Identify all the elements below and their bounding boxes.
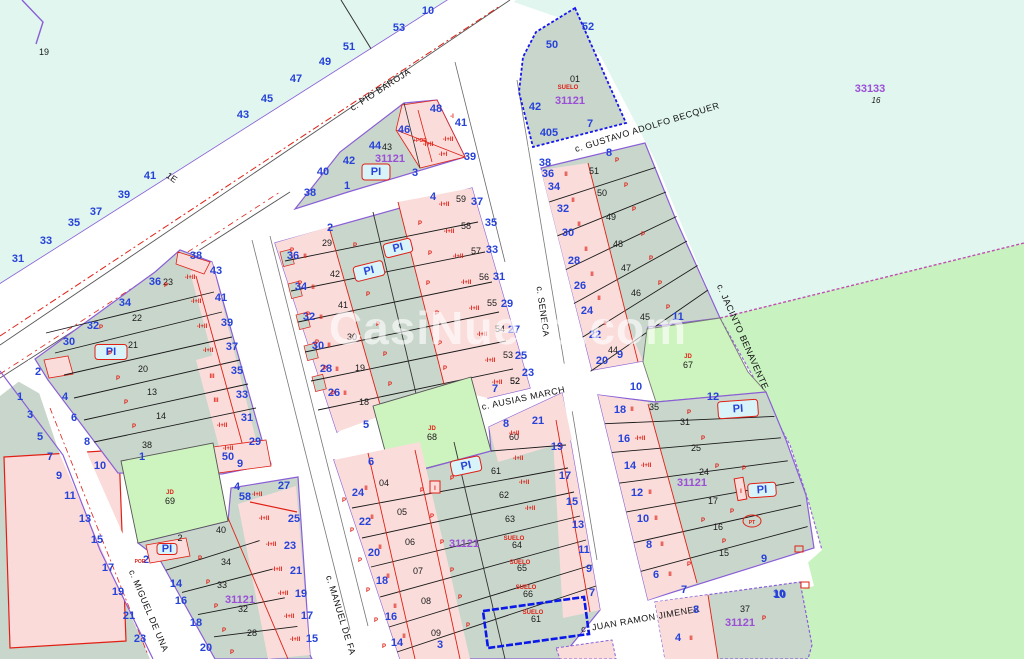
- svg-text:-I+II: -I+II: [461, 280, 472, 286]
- svg-text:16: 16: [175, 595, 187, 607]
- svg-text:-I+II: -I+II: [191, 299, 202, 305]
- svg-text:18: 18: [190, 617, 202, 629]
- svg-text:P: P: [701, 518, 705, 524]
- svg-text:P: P: [428, 251, 432, 257]
- svg-text:SUELO: SUELO: [523, 610, 544, 616]
- svg-text:7: 7: [589, 587, 595, 599]
- svg-text:53: 53: [393, 22, 405, 34]
- svg-text:-I+II: -I+II: [266, 542, 277, 548]
- svg-text:49: 49: [319, 56, 331, 68]
- svg-text:21: 21: [532, 415, 544, 427]
- svg-text:P: P: [198, 556, 202, 562]
- svg-text:23: 23: [134, 633, 146, 645]
- svg-text:40: 40: [216, 525, 226, 535]
- svg-text:19: 19: [551, 441, 563, 453]
- svg-text:P: P: [658, 281, 662, 287]
- svg-text:39: 39: [464, 151, 476, 163]
- svg-text:17: 17: [102, 562, 114, 574]
- svg-text:III: III: [209, 374, 214, 380]
- svg-text:07: 07: [413, 566, 423, 576]
- svg-text:17: 17: [708, 496, 718, 506]
- svg-text:14: 14: [624, 460, 637, 472]
- svg-text:P: P: [430, 514, 434, 520]
- svg-text:18: 18: [359, 397, 369, 407]
- svg-text:-I+II: -I+II: [272, 567, 283, 573]
- svg-text:50: 50: [546, 39, 558, 51]
- svg-text:68: 68: [427, 432, 437, 442]
- svg-text:P: P: [624, 183, 628, 189]
- svg-text:31: 31: [680, 417, 690, 427]
- svg-text:31121: 31121: [725, 617, 755, 629]
- svg-text:P: P: [382, 644, 386, 650]
- svg-text:PI: PI: [371, 166, 381, 178]
- svg-text:24: 24: [699, 467, 709, 477]
- svg-text:P: P: [323, 366, 327, 372]
- svg-text:21: 21: [128, 340, 138, 350]
- svg-text:2: 2: [35, 366, 41, 378]
- svg-text:P: P: [420, 488, 424, 494]
- svg-text:34: 34: [119, 297, 132, 309]
- svg-text:P: P: [214, 604, 218, 610]
- svg-text:4: 4: [675, 632, 682, 644]
- svg-text:3: 3: [437, 639, 443, 651]
- svg-text:11: 11: [578, 544, 590, 556]
- svg-text:43: 43: [237, 109, 249, 121]
- svg-text:-I+II: -I+II: [444, 229, 455, 235]
- svg-text:II: II: [343, 391, 347, 397]
- svg-text:39: 39: [118, 189, 130, 201]
- svg-text:P: P: [615, 158, 619, 164]
- svg-text:16: 16: [713, 522, 723, 532]
- svg-text:II: II: [364, 486, 368, 492]
- svg-text:48: 48: [613, 239, 623, 249]
- svg-text:II: II: [689, 636, 693, 642]
- svg-text:5: 5: [37, 431, 43, 443]
- svg-text:30: 30: [562, 227, 574, 239]
- svg-text:9: 9: [56, 470, 62, 482]
- svg-text:4: 4: [62, 391, 69, 403]
- svg-text:17: 17: [559, 470, 571, 482]
- svg-text:-I+II: -I+II: [509, 431, 520, 437]
- svg-text:31121: 31121: [225, 594, 255, 606]
- svg-text:15: 15: [566, 496, 578, 508]
- svg-text:52: 52: [510, 376, 520, 386]
- svg-text:P: P: [350, 528, 354, 534]
- svg-text:P: P: [99, 325, 103, 331]
- svg-text:II: II: [630, 407, 634, 413]
- svg-text:46: 46: [631, 288, 641, 298]
- svg-text:30: 30: [63, 336, 75, 348]
- svg-text:61: 61: [491, 466, 501, 476]
- svg-text:P: P: [342, 498, 346, 504]
- svg-text:II: II: [668, 572, 672, 578]
- svg-text:II: II: [571, 198, 575, 204]
- svg-text:37: 37: [226, 341, 238, 353]
- svg-text:8: 8: [84, 436, 90, 448]
- svg-text:26: 26: [574, 280, 586, 292]
- svg-text:35: 35: [231, 365, 243, 377]
- svg-text:40: 40: [317, 166, 329, 178]
- svg-text:P: P: [374, 618, 378, 624]
- svg-text:P: P: [458, 595, 462, 601]
- svg-text:II: II: [577, 222, 581, 228]
- svg-text:P: P: [418, 221, 422, 227]
- svg-text:16: 16: [872, 96, 881, 105]
- svg-text:P: P: [715, 464, 719, 470]
- svg-text:24: 24: [352, 487, 365, 499]
- svg-text:51: 51: [343, 41, 355, 53]
- svg-text:CasiNuevo.com: CasiNuevo.com: [329, 302, 687, 354]
- svg-text:-I+II: -I+II: [278, 591, 289, 597]
- svg-text:P: P: [306, 312, 310, 318]
- svg-text:05: 05: [397, 507, 407, 517]
- svg-text:34: 34: [221, 557, 231, 567]
- svg-text:50: 50: [222, 451, 234, 463]
- svg-text:III: III: [213, 398, 218, 404]
- svg-text:29: 29: [249, 436, 261, 448]
- svg-text:36: 36: [149, 276, 161, 288]
- svg-text:7: 7: [681, 584, 687, 596]
- svg-text:-I+II: -I+II: [290, 637, 301, 643]
- svg-text:34: 34: [548, 181, 561, 193]
- svg-text:41: 41: [215, 292, 227, 304]
- svg-text:37: 37: [740, 604, 750, 614]
- svg-text:35: 35: [68, 217, 80, 229]
- svg-text:1: 1: [17, 391, 23, 403]
- svg-text:33133: 33133: [855, 83, 886, 95]
- svg-text:23: 23: [284, 540, 296, 552]
- svg-text:P: P: [722, 539, 726, 545]
- svg-text:22: 22: [132, 313, 142, 323]
- svg-text:-I+II: -I+II: [259, 516, 270, 522]
- svg-text:09: 09: [431, 628, 441, 638]
- svg-text:P: P: [701, 436, 705, 442]
- svg-text:II: II: [654, 516, 658, 522]
- svg-text:46: 46: [398, 124, 410, 136]
- svg-text:42: 42: [343, 155, 355, 167]
- svg-text:8: 8: [503, 418, 509, 430]
- svg-text:12: 12: [631, 487, 643, 499]
- svg-text:16: 16: [618, 433, 630, 445]
- svg-text:7: 7: [47, 451, 53, 463]
- svg-text:6: 6: [653, 569, 659, 581]
- svg-text:01: 01: [570, 74, 580, 84]
- svg-text:P: P: [366, 588, 370, 594]
- svg-text:19: 19: [295, 588, 307, 600]
- svg-text:37: 37: [90, 206, 102, 218]
- svg-text:38: 38: [539, 157, 551, 169]
- svg-text:13: 13: [147, 387, 157, 397]
- svg-text:31121: 31121: [449, 538, 479, 550]
- svg-text:SUELO: SUELO: [504, 536, 525, 542]
- svg-text:10: 10: [637, 513, 649, 525]
- svg-text:P: P: [108, 351, 112, 357]
- svg-text:9: 9: [586, 563, 592, 575]
- svg-text:405: 405: [540, 127, 558, 139]
- svg-text:-I+II: -I+II: [485, 358, 496, 364]
- svg-text:67: 67: [683, 360, 693, 370]
- svg-text:2: 2: [327, 222, 333, 234]
- svg-text:50: 50: [597, 188, 607, 198]
- svg-text:P: P: [649, 256, 653, 262]
- svg-text:35: 35: [485, 217, 497, 229]
- svg-text:POR: POR: [135, 559, 146, 565]
- svg-text:-I+II: -I+II: [439, 202, 450, 208]
- svg-text:2: 2: [177, 533, 182, 543]
- svg-text:35: 35: [649, 402, 659, 412]
- svg-text:28: 28: [568, 255, 580, 267]
- svg-text:10: 10: [94, 460, 106, 472]
- svg-text:II: II: [584, 247, 588, 253]
- svg-text:47: 47: [290, 73, 302, 85]
- svg-text:08: 08: [421, 596, 431, 606]
- svg-text:16: 16: [385, 611, 397, 623]
- svg-text:43: 43: [382, 142, 392, 152]
- svg-text:P: P: [742, 466, 746, 472]
- svg-text:3: 3: [412, 167, 418, 179]
- svg-text:P: P: [358, 558, 362, 564]
- svg-text:II: II: [386, 574, 390, 580]
- svg-text:P: P: [290, 248, 294, 254]
- svg-text:II: II: [311, 285, 315, 291]
- svg-text:-I+I: -I+I: [439, 152, 448, 158]
- svg-text:-I+II: -I+II: [453, 254, 464, 260]
- svg-text:8: 8: [606, 147, 612, 159]
- svg-text:P: P: [450, 568, 454, 574]
- svg-text:28: 28: [247, 628, 257, 638]
- svg-text:63: 63: [505, 514, 515, 524]
- svg-text:P: P: [443, 366, 447, 372]
- svg-text:-I+II: -I+II: [284, 614, 295, 620]
- svg-text:P: P: [388, 382, 392, 388]
- svg-text:10: 10: [422, 5, 434, 17]
- svg-text:9: 9: [761, 553, 767, 565]
- svg-text:47: 47: [621, 263, 631, 273]
- svg-text:39: 39: [221, 317, 233, 329]
- svg-text:-I+II: -I+II: [519, 480, 530, 486]
- svg-text:II: II: [303, 254, 307, 260]
- svg-text:PT: PT: [749, 520, 755, 526]
- svg-text:+POR: +POR: [413, 138, 427, 144]
- svg-text:-I+II: -I+II: [197, 324, 208, 330]
- svg-text:-I+II: -I+II: [223, 446, 234, 452]
- svg-text:-I+II: -I+II: [513, 456, 524, 462]
- svg-text:06: 06: [405, 537, 415, 547]
- svg-text:P: P: [366, 292, 370, 298]
- svg-text:P: P: [132, 424, 136, 430]
- svg-text:7: 7: [492, 383, 498, 395]
- svg-text:P: P: [440, 540, 444, 546]
- svg-text:P: P: [687, 410, 691, 416]
- svg-text:15: 15: [719, 548, 729, 558]
- svg-text:7: 7: [587, 118, 593, 130]
- svg-text:21: 21: [290, 565, 302, 577]
- svg-text:II: II: [378, 545, 382, 551]
- svg-text:6: 6: [71, 412, 77, 424]
- svg-text:P: P: [206, 580, 210, 586]
- svg-text:31121: 31121: [555, 95, 585, 107]
- svg-text:17: 17: [301, 610, 313, 622]
- svg-text:58: 58: [461, 221, 471, 231]
- svg-text:31121: 31121: [375, 153, 405, 165]
- svg-text:48: 48: [430, 103, 442, 115]
- svg-text:51: 51: [589, 166, 599, 176]
- svg-text:41: 41: [144, 170, 156, 182]
- svg-text:10: 10: [630, 381, 642, 393]
- svg-text:II: II: [402, 634, 406, 640]
- svg-text:37: 37: [471, 196, 483, 208]
- svg-text:10: 10: [774, 589, 786, 601]
- svg-text:1: 1: [139, 451, 145, 463]
- svg-text:38: 38: [304, 187, 316, 199]
- svg-text:33: 33: [236, 389, 248, 401]
- svg-text:SUELO: SUELO: [516, 585, 537, 591]
- svg-text:II: II: [335, 367, 339, 373]
- svg-text:36: 36: [542, 168, 554, 180]
- svg-text:19: 19: [355, 363, 365, 373]
- svg-text:9: 9: [237, 458, 243, 470]
- svg-text:PI: PI: [732, 403, 743, 416]
- svg-text:14: 14: [170, 578, 183, 590]
- svg-text:32: 32: [87, 320, 99, 332]
- svg-text:32: 32: [557, 203, 569, 215]
- svg-text:15: 15: [91, 534, 103, 546]
- svg-text:-I: -I: [450, 114, 454, 120]
- svg-text:19: 19: [112, 586, 124, 598]
- svg-text:-I+II: -I+II: [203, 348, 214, 354]
- svg-text:P: P: [426, 281, 430, 287]
- svg-text:SUELO: SUELO: [558, 85, 579, 91]
- svg-text:P: P: [298, 281, 302, 287]
- svg-text:20: 20: [596, 355, 608, 367]
- svg-text:59: 59: [456, 194, 466, 204]
- svg-text:52: 52: [582, 21, 594, 33]
- svg-text:4: 4: [430, 191, 437, 203]
- svg-text:33: 33: [486, 244, 498, 256]
- svg-text:II: II: [660, 542, 664, 548]
- svg-text:42: 42: [529, 101, 541, 113]
- svg-text:44: 44: [369, 140, 382, 152]
- svg-text:-I+II: -I+II: [185, 275, 196, 281]
- svg-text:P: P: [632, 207, 636, 213]
- svg-text:31: 31: [12, 253, 24, 265]
- svg-text:PI: PI: [162, 543, 172, 555]
- svg-text:II: II: [370, 515, 374, 521]
- svg-text:II: II: [648, 490, 652, 496]
- svg-text:-I+II: -I+II: [443, 137, 454, 143]
- svg-text:11: 11: [64, 490, 76, 502]
- svg-text:II: II: [319, 315, 323, 321]
- svg-text:3: 3: [27, 409, 33, 421]
- svg-text:P: P: [450, 476, 454, 482]
- svg-text:69: 69: [165, 496, 175, 506]
- svg-text:22: 22: [359, 516, 371, 528]
- svg-text:P: P: [331, 391, 335, 397]
- svg-text:31: 31: [493, 271, 505, 283]
- svg-text:P: P: [116, 376, 120, 382]
- svg-text:29: 29: [322, 238, 332, 248]
- svg-text:P: P: [164, 283, 168, 289]
- svg-text:33: 33: [40, 235, 52, 247]
- svg-text:12: 12: [707, 391, 719, 403]
- svg-text:1: 1: [344, 180, 350, 192]
- svg-text:P: P: [353, 243, 357, 249]
- svg-text:-I+II: -I+II: [252, 492, 263, 498]
- svg-text:-I+II: -I+II: [217, 423, 228, 429]
- svg-text:33: 33: [217, 580, 227, 590]
- svg-text:II: II: [564, 172, 568, 178]
- svg-text:6: 6: [368, 456, 374, 468]
- svg-text:45: 45: [261, 93, 273, 105]
- svg-text:P: P: [687, 562, 691, 568]
- svg-text:-I+II: -I+II: [525, 506, 536, 512]
- svg-text:31: 31: [241, 412, 253, 424]
- svg-text:-I+II: -I+II: [635, 436, 646, 442]
- svg-text:II: II: [590, 272, 594, 278]
- svg-text:49: 49: [606, 212, 616, 222]
- svg-text:PI: PI: [756, 484, 767, 497]
- svg-text:15: 15: [306, 633, 318, 645]
- svg-text:P: P: [466, 623, 470, 629]
- svg-text:38: 38: [190, 250, 202, 262]
- svg-text:19: 19: [39, 47, 49, 57]
- svg-text:27: 27: [278, 480, 290, 492]
- svg-text:42: 42: [330, 269, 340, 279]
- svg-text:5: 5: [363, 419, 369, 431]
- svg-text:P: P: [124, 400, 128, 406]
- svg-text:31121: 31121: [677, 477, 707, 489]
- svg-text:II: II: [393, 604, 397, 610]
- svg-text:21: 21: [123, 610, 135, 622]
- svg-text:25: 25: [288, 513, 300, 525]
- svg-text:P: P: [222, 628, 226, 634]
- svg-text:58: 58: [239, 491, 251, 503]
- svg-text:13: 13: [79, 513, 91, 525]
- svg-text:P: P: [641, 232, 645, 238]
- svg-text:8: 8: [693, 604, 699, 616]
- svg-text:18: 18: [614, 404, 626, 416]
- svg-text:P: P: [730, 509, 734, 515]
- svg-text:41: 41: [455, 117, 467, 129]
- svg-text:P: P: [315, 340, 319, 346]
- svg-text:13: 13: [572, 519, 584, 531]
- svg-text:56: 56: [479, 272, 489, 282]
- svg-text:04: 04: [379, 478, 389, 488]
- svg-text:P: P: [230, 650, 234, 656]
- svg-text:23: 23: [522, 367, 534, 379]
- svg-text:38: 38: [142, 440, 152, 450]
- svg-text:P: P: [762, 616, 766, 622]
- svg-text:20: 20: [200, 642, 212, 654]
- svg-text:25: 25: [691, 443, 701, 453]
- svg-text:SUELO: SUELO: [510, 560, 531, 566]
- svg-text:8: 8: [646, 539, 652, 551]
- svg-text:14: 14: [156, 411, 166, 421]
- svg-text:-I+II: -I+II: [641, 463, 652, 469]
- svg-text:20: 20: [138, 364, 148, 374]
- svg-text:57: 57: [471, 246, 481, 256]
- svg-text:43: 43: [210, 265, 222, 277]
- svg-text:62: 62: [499, 490, 509, 500]
